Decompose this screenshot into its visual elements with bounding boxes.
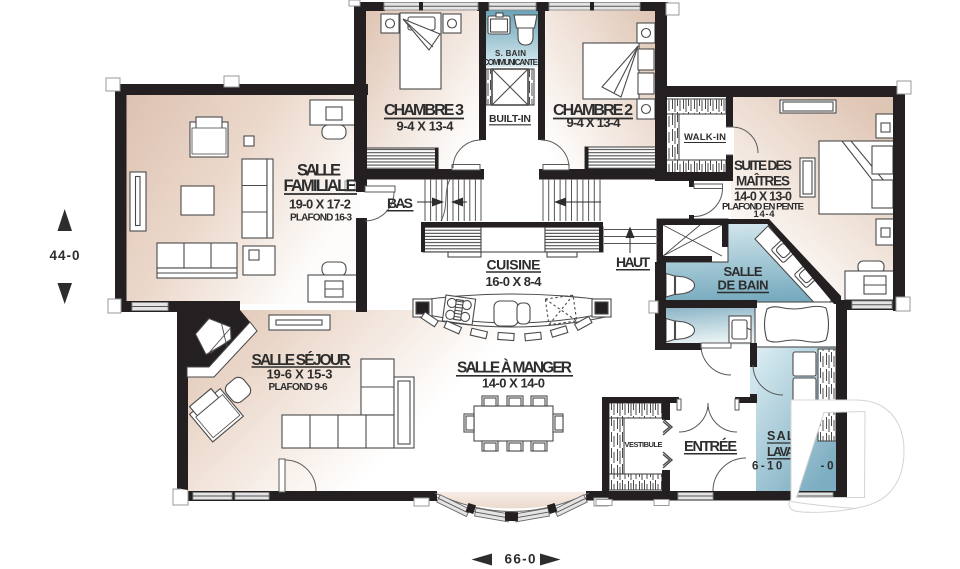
svg-text:66-0: 66-0 — [505, 552, 536, 567]
svg-text:CHAMBRE 3: CHAMBRE 3 — [384, 102, 464, 119]
svg-text:44-0: 44-0 — [50, 248, 80, 263]
svg-text:-0: -0 — [821, 461, 834, 473]
svg-text:S. BAIN: S. BAIN — [495, 49, 526, 58]
svg-text:19-6 X 15-3: 19-6 X 15-3 — [267, 367, 333, 382]
svg-text:ENTRÉE: ENTRÉE — [684, 438, 737, 455]
svg-text:SALLE À MANGER: SALLE À MANGER — [457, 360, 572, 377]
svg-text:14-0 X 14-0: 14-0 X 14-0 — [482, 376, 545, 391]
svg-text:WALK-IN: WALK-IN — [684, 132, 726, 143]
svg-text:CUISINE: CUISINE — [487, 257, 541, 273]
svg-text:BAS: BAS — [387, 195, 413, 211]
svg-text:PLAFOND 16-3: PLAFOND 16-3 — [290, 213, 352, 224]
svg-text:FAMILIALE: FAMILIALE — [284, 177, 357, 195]
svg-text:14-4: 14-4 — [754, 209, 776, 220]
svg-text:VESTIBULE: VESTIBULE — [625, 440, 663, 449]
svg-text:19-0 X 17-2: 19-0 X 17-2 — [289, 197, 351, 212]
svg-text:9-4 X 13-4: 9-4 X 13-4 — [567, 115, 622, 130]
svg-text:16-0 X 8-4: 16-0 X 8-4 — [486, 274, 543, 289]
svg-text:COMMUNICANTE: COMMUNICANTE — [483, 58, 539, 67]
svg-text:PLAFOND 9-6: PLAFOND 9-6 — [269, 382, 328, 393]
svg-text:HAUT: HAUT — [616, 254, 650, 270]
svg-text:BUILT-IN: BUILT-IN — [489, 113, 531, 125]
svg-text:MAÎTRES: MAÎTRES — [736, 174, 790, 189]
svg-text:9-4 X 13-4: 9-4 X 13-4 — [397, 119, 455, 134]
svg-text:DE BAIN: DE BAIN — [718, 278, 769, 293]
svg-text:SUITE DES: SUITE DES — [734, 158, 792, 173]
